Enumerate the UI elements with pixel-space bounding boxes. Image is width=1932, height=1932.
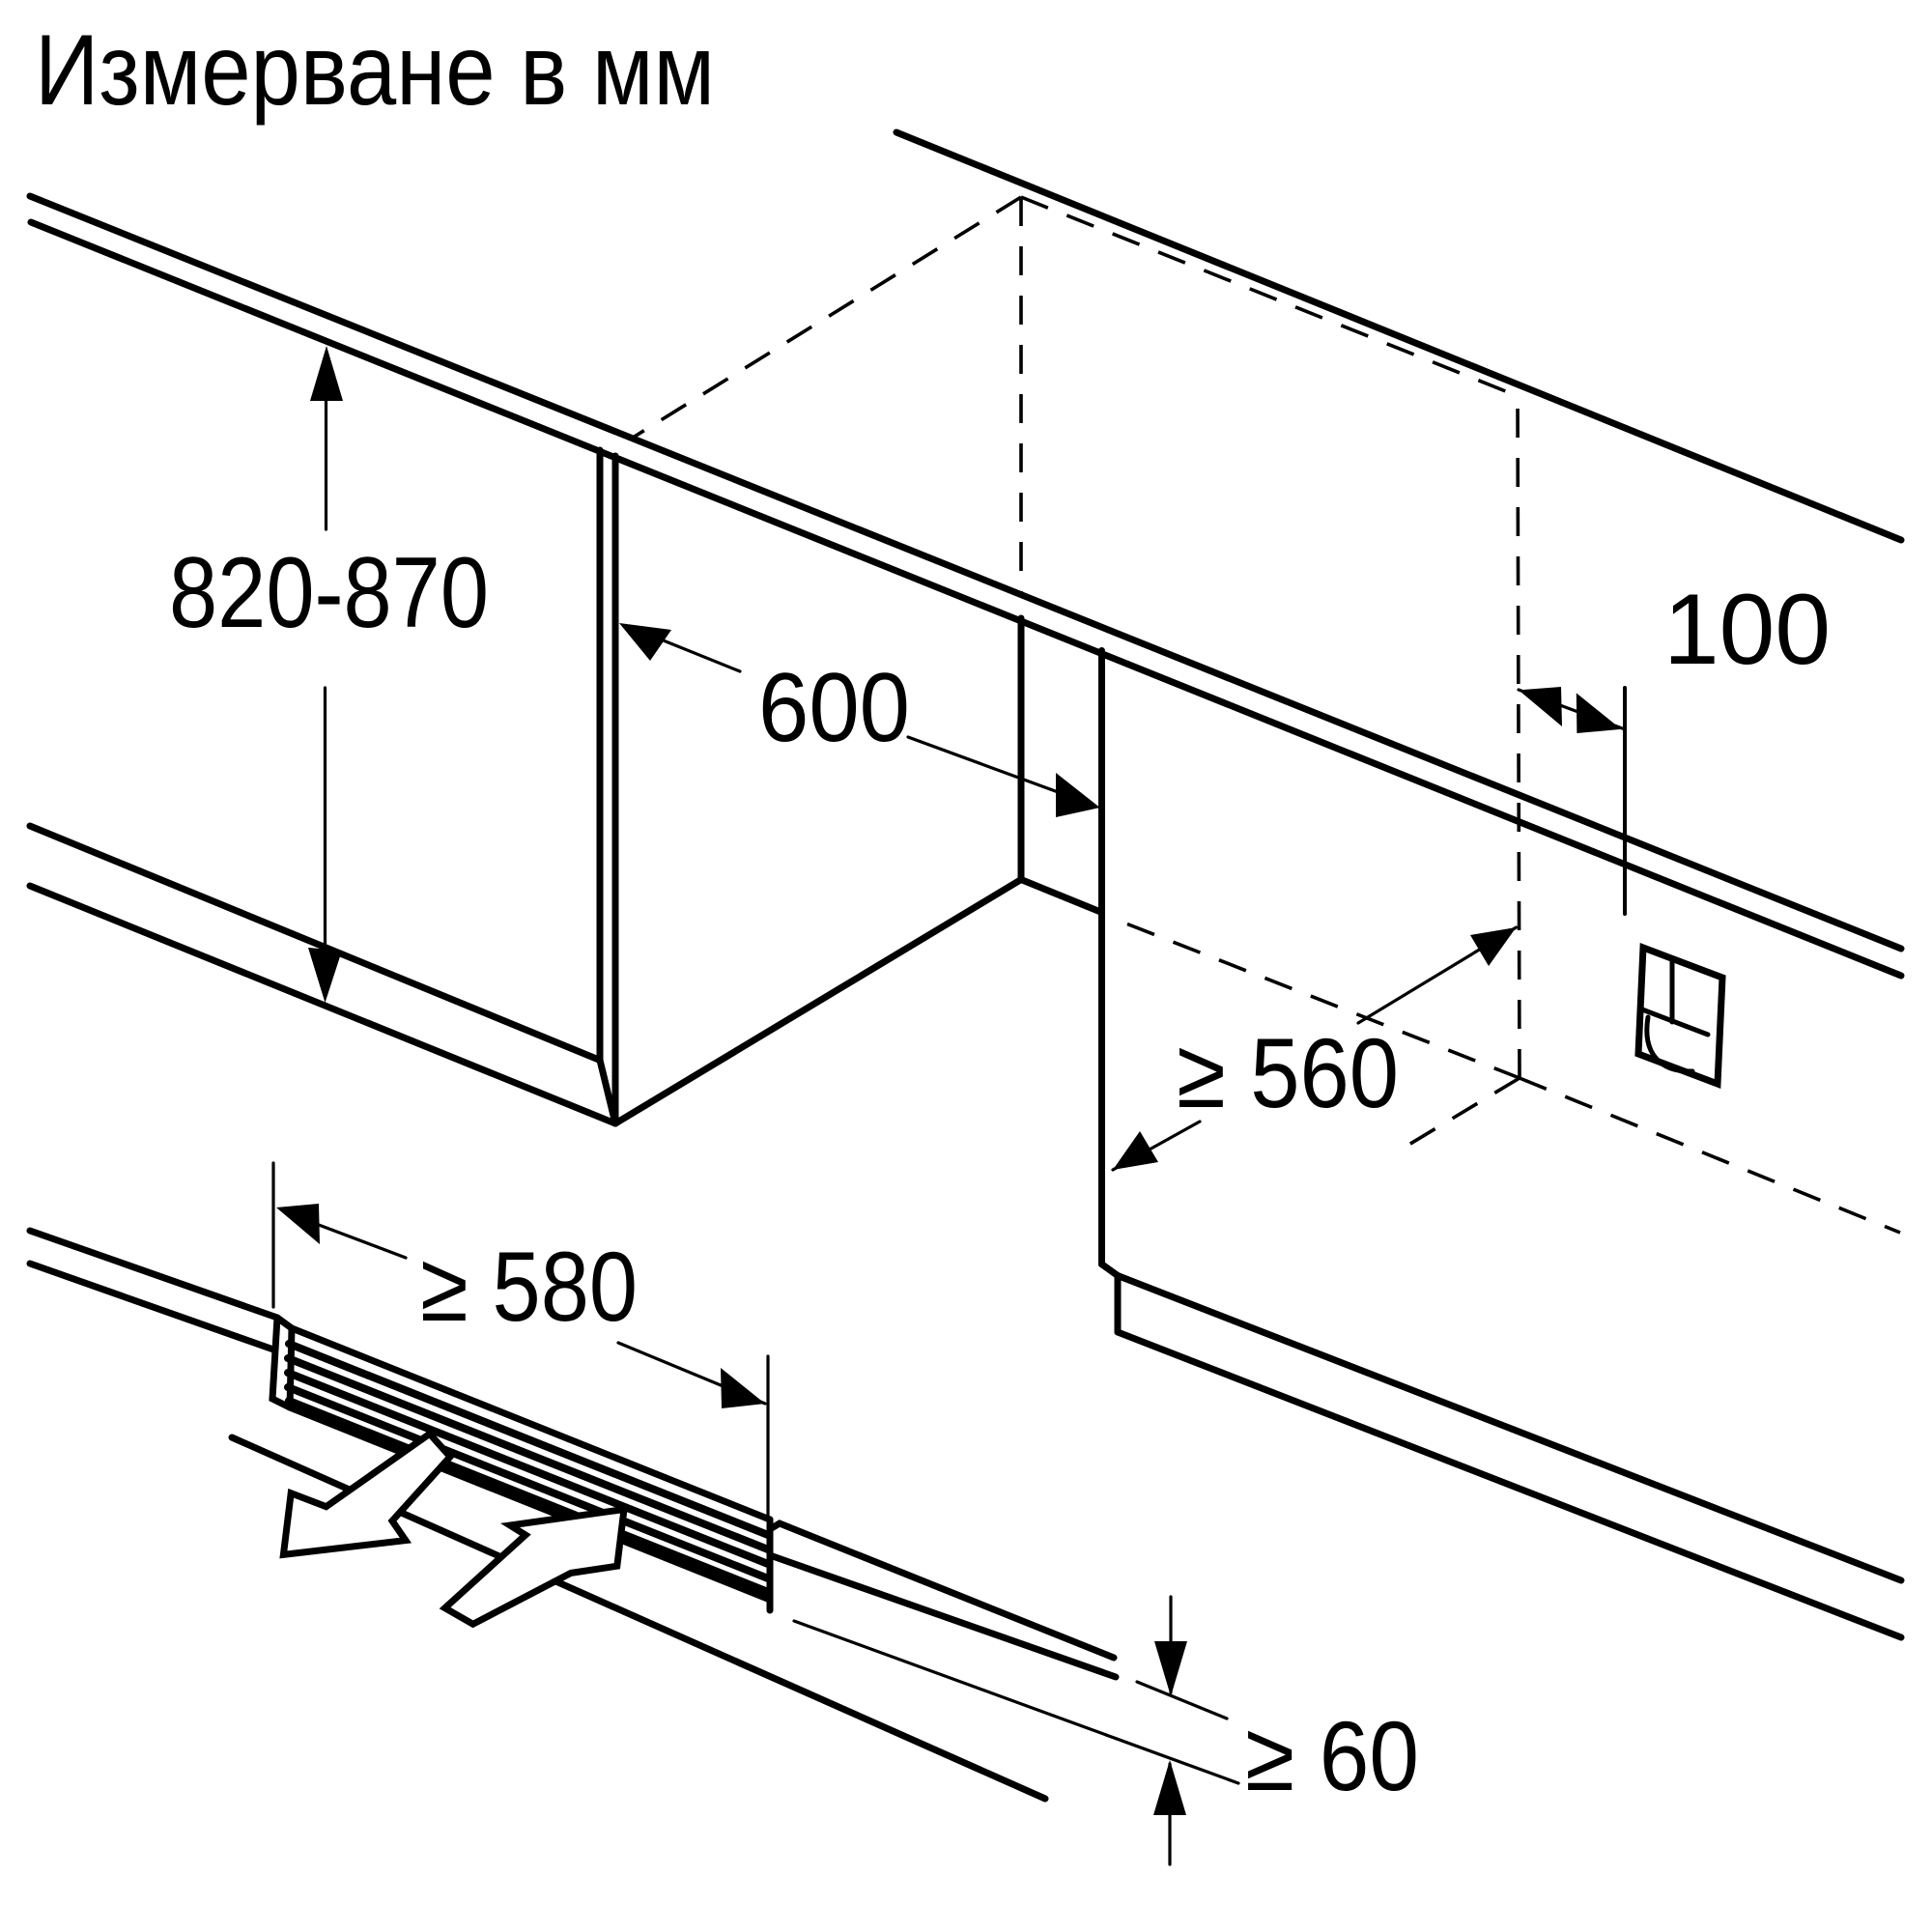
svg-text:100: 100 <box>1663 574 1831 686</box>
svg-text:600: 600 <box>758 654 910 762</box>
svg-text:≥ 580: ≥ 580 <box>420 1232 638 1342</box>
svg-text:≥ 60: ≥ 60 <box>1245 1701 1419 1811</box>
svg-text:Измерване в мм: Измерване в мм <box>35 14 715 127</box>
svg-text:820-870: 820-870 <box>169 537 489 649</box>
svg-text:≥ 560: ≥ 560 <box>1177 1018 1399 1128</box>
